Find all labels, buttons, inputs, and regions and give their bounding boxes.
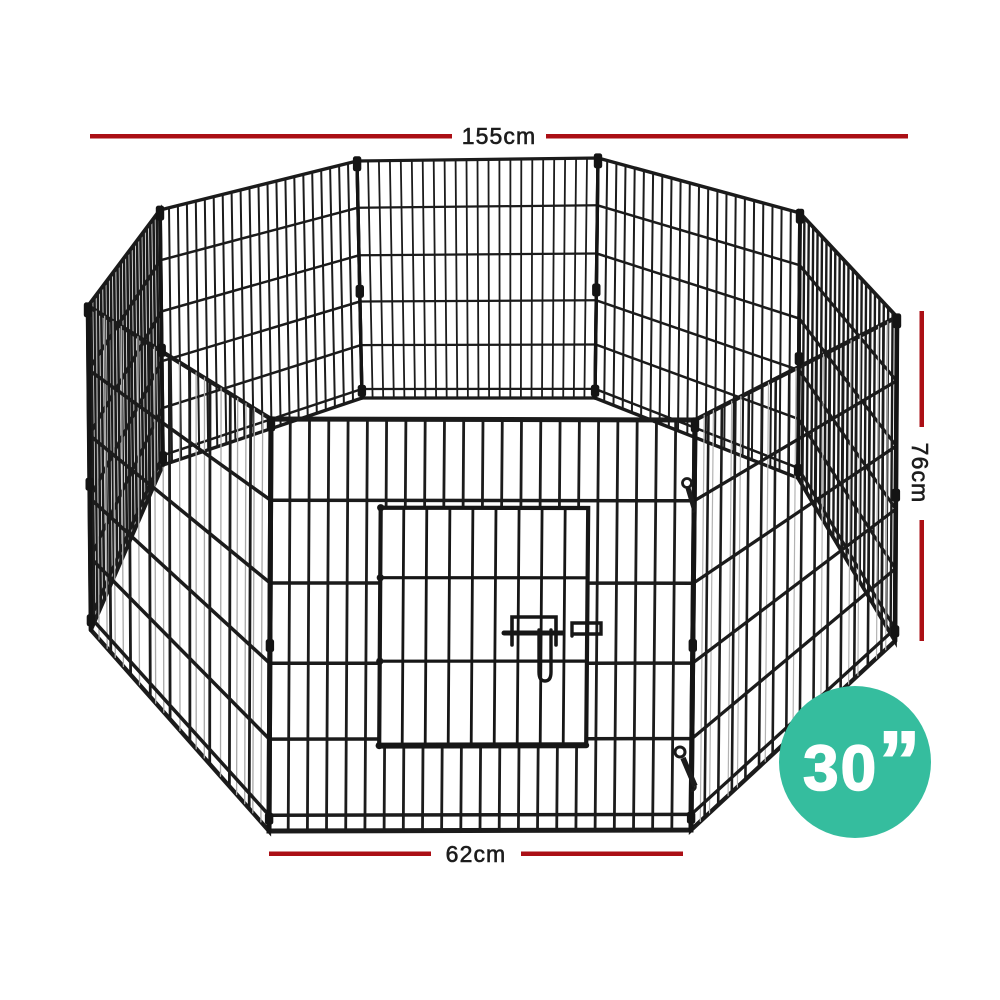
svg-text:62cm: 62cm [446, 841, 507, 867]
svg-text:155cm: 155cm [462, 123, 537, 149]
svg-text:76cm: 76cm [907, 443, 933, 504]
